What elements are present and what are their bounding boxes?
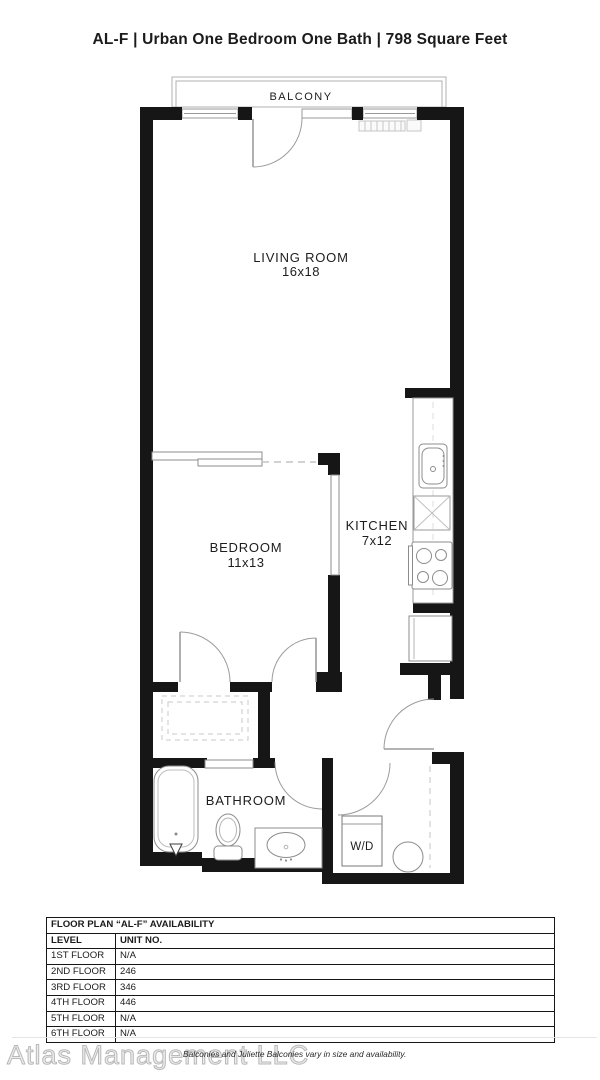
closet-shelves: [162, 696, 248, 740]
table-row: 5TH FLOOR N/A: [47, 1011, 555, 1027]
table-header-row: LEVEL UNIT NO.: [47, 933, 555, 949]
unit-cell: 446: [116, 995, 555, 1011]
kitchen-fixtures: [409, 398, 454, 661]
table-row: 2ND FLOOR 246: [47, 964, 555, 980]
bedroom-sliding-door-panel: [198, 459, 262, 466]
living-room-dims: 16x18: [282, 264, 320, 279]
room-labels: BALCONY LIVING ROOM 16x18 BEDROOM 11x13 …: [206, 91, 409, 853]
floor-plan: BALCONY LIVING ROOM 16x18 BEDROOM 11x13 …: [0, 0, 600, 900]
entry-door-arc: [384, 699, 434, 749]
vanity-sink: [255, 828, 322, 868]
availability-table: FLOOR PLAN “AL-F” AVAILABILITY LEVEL UNI…: [46, 917, 555, 1043]
table-row: 3RD FLOOR 346: [47, 980, 555, 996]
balcony-label: BALCONY: [269, 91, 332, 103]
unit-cell: 346: [116, 980, 555, 996]
laundry-label: W/D: [350, 841, 373, 853]
bathroom-label: BATHROOM: [206, 793, 287, 808]
table-row: 1ST FLOOR N/A: [47, 949, 555, 965]
table-row: 4TH FLOOR 446: [47, 995, 555, 1011]
col-header-unit: UNIT NO.: [116, 933, 555, 949]
balcony-windows: [182, 109, 417, 118]
level-cell: 1ST FLOOR: [47, 949, 116, 965]
level-cell: 3RD FLOOR: [47, 980, 116, 996]
laundry-fixtures: [342, 766, 430, 872]
unit-cell: N/A: [116, 1011, 555, 1027]
closet-door-arc: [180, 632, 230, 682]
baseboard-heater: [359, 120, 421, 131]
refrigerator: [409, 616, 452, 661]
bedroom-dims: 11x13: [228, 555, 265, 570]
sliding-doors: [152, 452, 339, 768]
level-cell: 2ND FLOOR: [47, 964, 116, 980]
laundry-door-arc: [338, 763, 390, 815]
footer-divider: [12, 1037, 597, 1038]
unit-cell: 246: [116, 964, 555, 980]
unit-cell: N/A: [116, 949, 555, 965]
col-header-level: LEVEL: [47, 933, 116, 949]
table-title-row: FLOOR PLAN “AL-F” AVAILABILITY: [47, 918, 555, 934]
living-room-label: LIVING ROOM: [253, 250, 348, 265]
kitchen-dims: 7x12: [362, 533, 392, 548]
table-title: FLOOR PLAN “AL-F” AVAILABILITY: [47, 918, 555, 934]
toilet: [214, 814, 242, 860]
bedroom-side-sliding-door: [331, 475, 339, 575]
stove: [409, 542, 453, 589]
bathtub: [154, 766, 198, 852]
bedroom-label: BEDROOM: [210, 540, 283, 555]
level-cell: 4TH FLOOR: [47, 995, 116, 1011]
water-heater: [393, 842, 423, 872]
disclaimer-text: Balconies and Juliette Balconies vary in…: [183, 1049, 406, 1059]
balcony-door-arc: [253, 118, 302, 167]
level-cell: 5TH FLOOR: [47, 1011, 116, 1027]
bathroom-pocket-door: [205, 760, 253, 768]
kitchen-label: KITCHEN: [346, 518, 409, 533]
kitchen-sink: [419, 444, 447, 488]
bedroom-door-arc: [272, 638, 316, 682]
